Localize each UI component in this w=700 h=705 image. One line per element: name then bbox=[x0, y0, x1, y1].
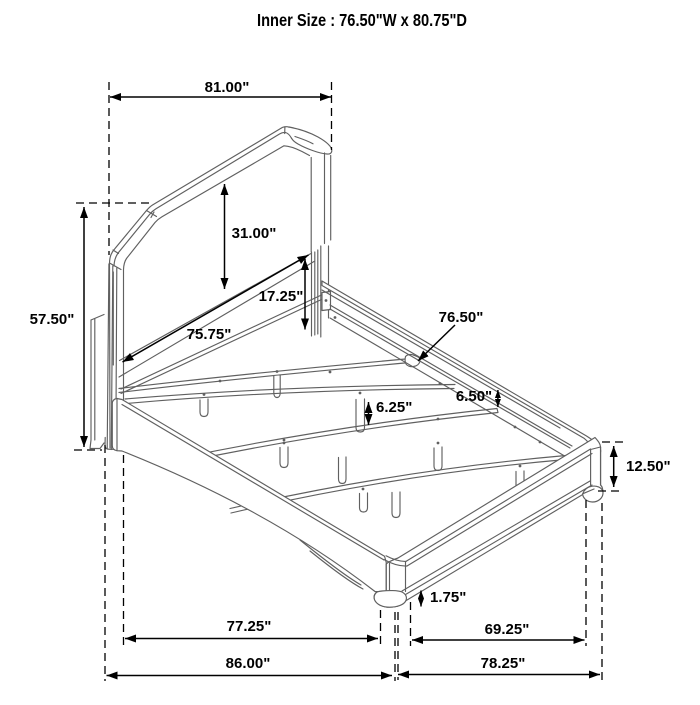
svg-text:77.25": 77.25" bbox=[227, 618, 272, 635]
svg-text:69.25": 69.25" bbox=[485, 621, 530, 638]
svg-text:78.25": 78.25" bbox=[481, 655, 526, 672]
svg-text:12.50": 12.50" bbox=[626, 458, 671, 475]
svg-text:1.75": 1.75" bbox=[430, 589, 466, 606]
svg-text:6.50": 6.50" bbox=[456, 388, 492, 405]
svg-text:6.25": 6.25" bbox=[376, 399, 412, 416]
svg-text:76.50": 76.50" bbox=[439, 309, 484, 326]
svg-text:75.75": 75.75" bbox=[187, 326, 232, 343]
svg-text:57.50": 57.50" bbox=[30, 311, 75, 328]
svg-text:17.25": 17.25" bbox=[259, 288, 304, 305]
svg-text:86.00": 86.00" bbox=[226, 655, 271, 672]
svg-text:Inner Size : 76.50"W x 80.75"D: Inner Size : 76.50"W x 80.75"D bbox=[257, 10, 467, 30]
svg-text:81.00": 81.00" bbox=[205, 79, 250, 96]
svg-text:31.00": 31.00" bbox=[232, 225, 277, 242]
